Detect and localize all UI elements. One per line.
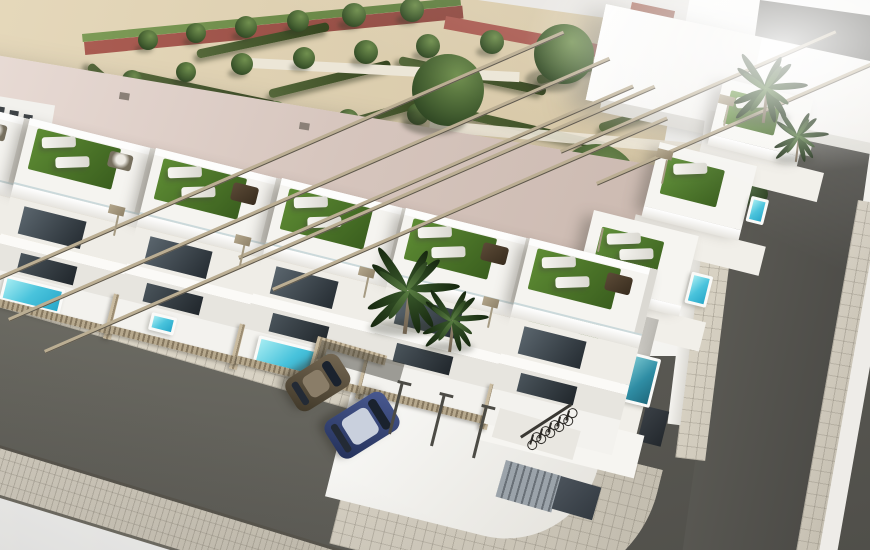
park-tree (235, 16, 257, 38)
pool-water (749, 199, 765, 221)
sun-lounger (55, 156, 89, 168)
sun-lounger (673, 163, 707, 175)
park-tree (231, 53, 253, 75)
pool-water (152, 316, 174, 332)
private-pool (745, 196, 769, 226)
pool-water (688, 275, 710, 304)
architectural-render (0, 0, 870, 550)
park-tree (416, 34, 440, 58)
sun-lounger (542, 256, 576, 268)
sun-lounger (168, 166, 202, 178)
sun-lounger (42, 136, 76, 148)
sun-lounger (418, 226, 452, 238)
park-tree (176, 62, 196, 82)
private-pool (684, 272, 713, 308)
park-tree (138, 30, 158, 50)
sun-lounger (619, 248, 653, 260)
roof-vent (299, 122, 310, 130)
sun-lounger (555, 276, 589, 288)
park-tree (354, 40, 378, 64)
roof-vent (119, 92, 130, 100)
park-tree (287, 10, 309, 32)
park-tree (480, 30, 504, 54)
park-tree (293, 47, 315, 69)
park-tree (186, 23, 206, 43)
sun-lounger (607, 233, 641, 245)
sun-lounger (431, 246, 465, 258)
park-tree (342, 3, 366, 27)
sun-lounger (294, 196, 328, 208)
scene-canvas (0, 0, 870, 550)
